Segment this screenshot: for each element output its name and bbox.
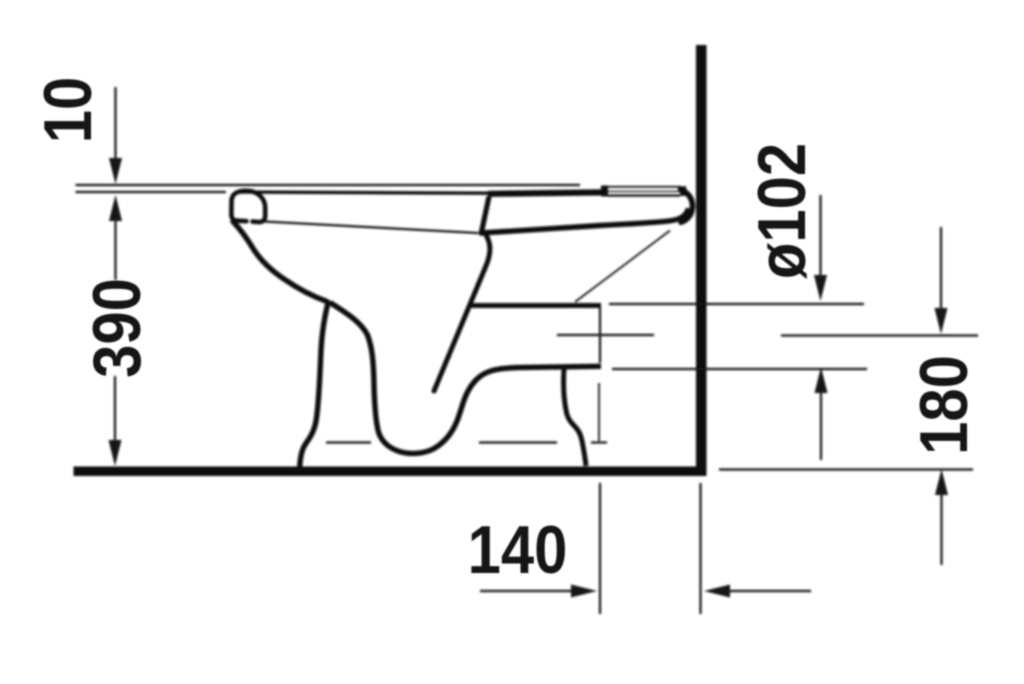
svg-text:ø102: ø102 <box>743 143 819 279</box>
svg-text:390: 390 <box>78 278 154 378</box>
svg-text:180: 180 <box>905 355 981 455</box>
svg-text:140: 140 <box>468 511 568 587</box>
svg-text:10: 10 <box>29 77 105 144</box>
